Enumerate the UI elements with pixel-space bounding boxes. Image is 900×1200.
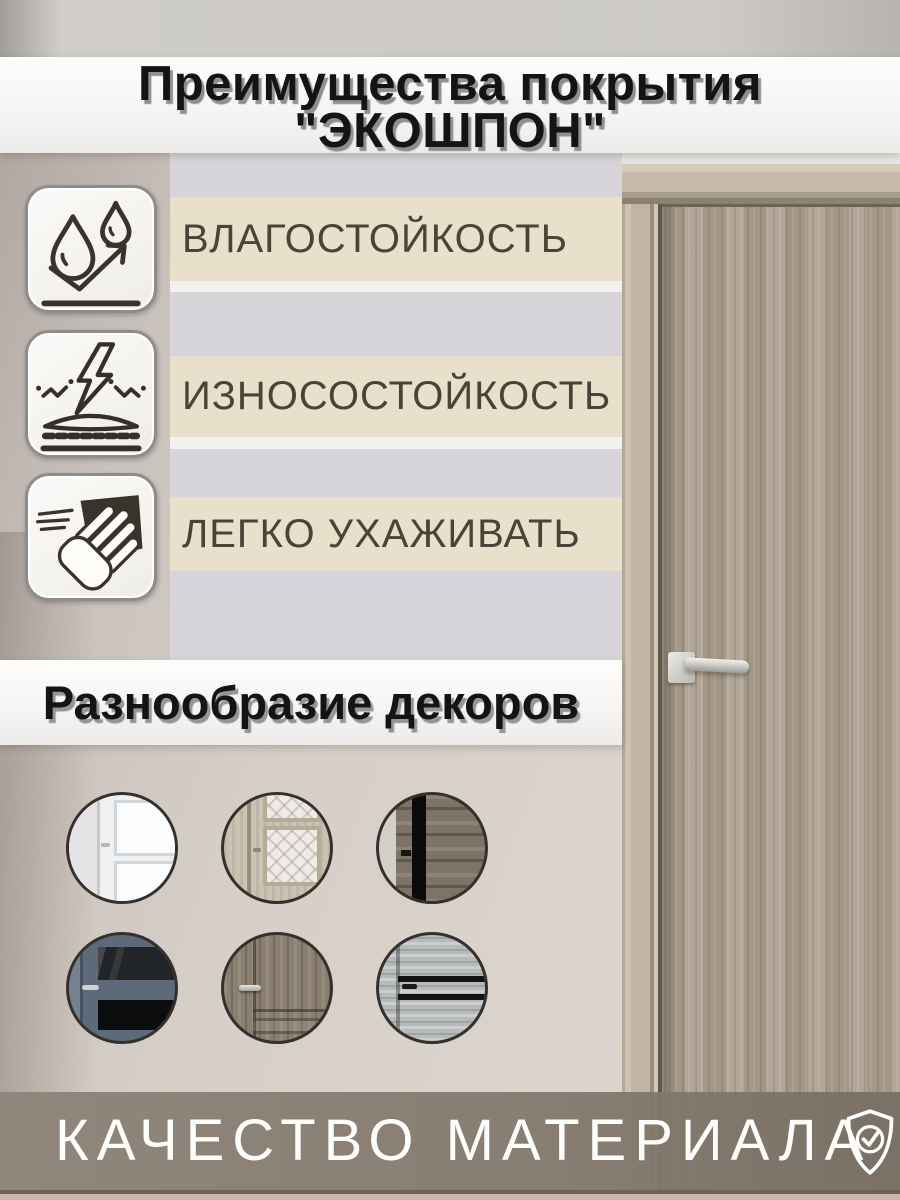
door-leaf <box>662 204 900 1200</box>
taupe-classic-wood-door-decor <box>221 932 333 1044</box>
band-gray <box>170 449 622 497</box>
band-white <box>170 281 622 292</box>
feature-label: ИЗНОСОСТОЙКОСТЬ <box>182 374 611 419</box>
title-line-1: Преимущества покрытия <box>0 61 900 108</box>
band-gray <box>170 292 622 356</box>
impact-surface-icon <box>28 333 154 455</box>
hand-wipe-icon <box>28 476 154 598</box>
ecoshpon-infographic: ВЛАГОСТОЙКОСТЬ ИЗНОСОСТОЙКОСТЬ ЛЕГКО УХА… <box>0 0 900 1200</box>
feature-label: ВЛАГОСТОЙКОСТЬ <box>182 217 568 262</box>
shield-check-icon <box>842 1103 898 1181</box>
white-classic-door-decor <box>66 792 178 904</box>
title-banner: Преимущества покрытия "ЭКОШПОН" <box>0 57 900 153</box>
feature-strip-wear: ИЗНОСОСТОЙКОСТЬ <box>170 356 622 437</box>
easy-care-icon <box>25 473 157 601</box>
feature-label: ЛЕГКО УХАЖИВАТЬ <box>182 512 581 557</box>
band-gray <box>170 571 622 660</box>
decors-heading: Разнообразие декоров <box>43 676 579 729</box>
wall-top-photo <box>0 0 900 57</box>
band-white <box>170 437 622 449</box>
quality-label: КАЧЕСТВО МАТЕРИАЛА <box>55 1108 871 1173</box>
blue-gray-door-dark-glass-decor <box>66 932 178 1044</box>
quality-banner: КАЧЕСТВО МАТЕРИАЛА <box>0 1092 900 1190</box>
wear-resistance-icon <box>25 330 157 458</box>
floor-strip <box>0 1194 900 1200</box>
beige-door-patterned-glass-decor <box>221 792 333 904</box>
feature-strip-care: ЛЕГКО УХАЖИВАТЬ <box>170 497 622 571</box>
door-handle <box>668 650 754 690</box>
feature-strip-moisture: ВЛАГОСТОЙКОСТЬ <box>170 197 622 281</box>
title-line-2: "ЭКОШПОН" <box>0 108 900 155</box>
door-photo <box>622 150 900 1200</box>
water-drops-icon <box>28 188 154 310</box>
gray-wood-black-molding-door-decor <box>376 932 488 1044</box>
decors-heading-banner: Разнообразие декоров <box>0 660 622 745</box>
door-frame-jamb <box>622 204 658 1200</box>
moisture-resistance-icon <box>25 185 157 313</box>
dark-rustic-wood-decor <box>376 792 488 904</box>
door-frame-top <box>622 164 900 204</box>
